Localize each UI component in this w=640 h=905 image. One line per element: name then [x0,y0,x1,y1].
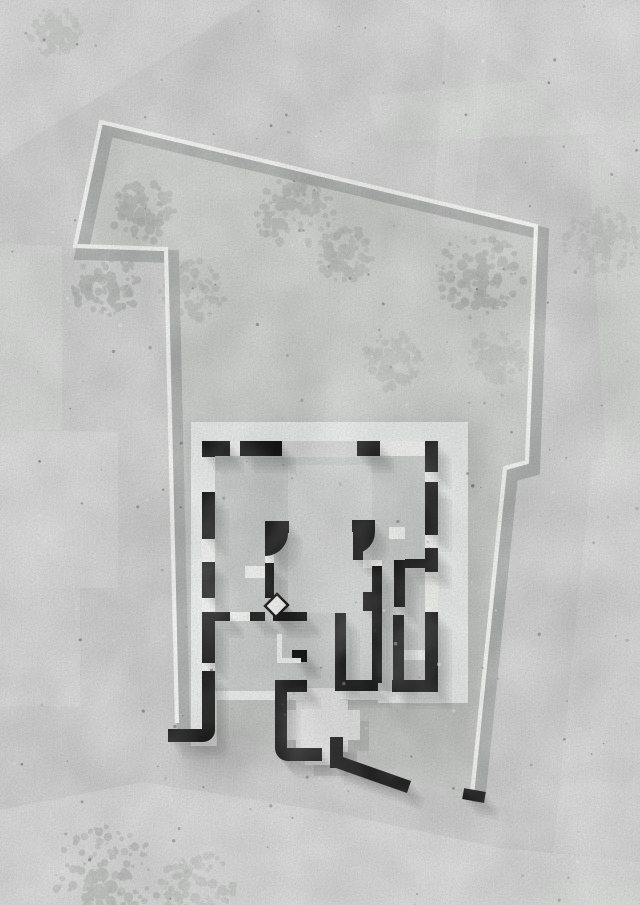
floor-band-left [245,566,265,578]
door-gap-h2 [389,527,405,539]
right-wall-seg-1 [425,441,438,472]
architectural-site-plan [0,0,640,905]
right-wall-seg-4 [425,612,438,691]
partition-v2-step [363,592,372,611]
left-wall-seg-3 [202,562,215,598]
partition-h4a [212,612,230,621]
left-wall-seg-1 [202,441,215,457]
site-plan-canvas [0,0,640,905]
partition-h4b [250,612,265,621]
top-wall-seg-3 [357,441,380,456]
partition-v1 [265,563,274,598]
corridor-bottom-wall [335,680,378,691]
top-wall-seg-2 [240,441,282,456]
partition-h3 [405,559,438,568]
corridor-left-wall [335,613,346,681]
patch-left-1 [0,244,62,430]
entry-porch-floor [282,441,357,457]
partition-v1-stub [265,533,274,553]
partition-h1 [265,521,289,533]
partition-v2-stub [353,534,363,560]
patch-left-3 [0,588,80,706]
bath-wall-white-h [277,658,301,663]
patch-left-2 [0,430,118,588]
partition-v4b [393,615,404,681]
right-wall-seg-2 [425,482,438,535]
left-wall-seg-2 [202,492,215,539]
partition-v4a [394,560,405,607]
partition-h2 [352,520,375,532]
partition-v2 [372,566,382,683]
right-room-bottom-wall [392,680,438,692]
